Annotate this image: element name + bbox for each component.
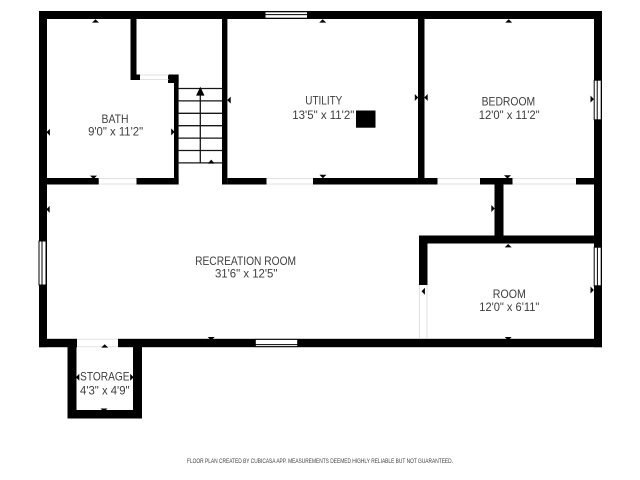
svg-text:4'3" x 4'9": 4'3" x 4'9" (80, 385, 130, 398)
svg-text:13'5" x 11'2": 13'5" x 11'2" (292, 109, 354, 122)
svg-text:12'0" x 6'11": 12'0" x 6'11" (479, 301, 539, 314)
svg-text:BEDROOM: BEDROOM (482, 96, 536, 109)
svg-text:RECREATION ROOM: RECREATION ROOM (195, 255, 296, 268)
svg-text:UTILITY: UTILITY (305, 94, 342, 107)
svg-text:12'0" x 11'2": 12'0" x 11'2" (479, 109, 540, 122)
svg-text:9'0" x 11'2": 9'0" x 11'2" (88, 126, 143, 139)
svg-text:STORAGE: STORAGE (80, 370, 130, 383)
svg-text:ROOM: ROOM (493, 288, 526, 301)
svg-text:FLOOR PLAN CREATED BY CUBICASA: FLOOR PLAN CREATED BY CUBICASA APP. MEAS… (187, 459, 453, 465)
svg-text:31'6" x 12'5": 31'6" x 12'5" (215, 268, 278, 281)
svg-text:BATH: BATH (102, 113, 129, 126)
